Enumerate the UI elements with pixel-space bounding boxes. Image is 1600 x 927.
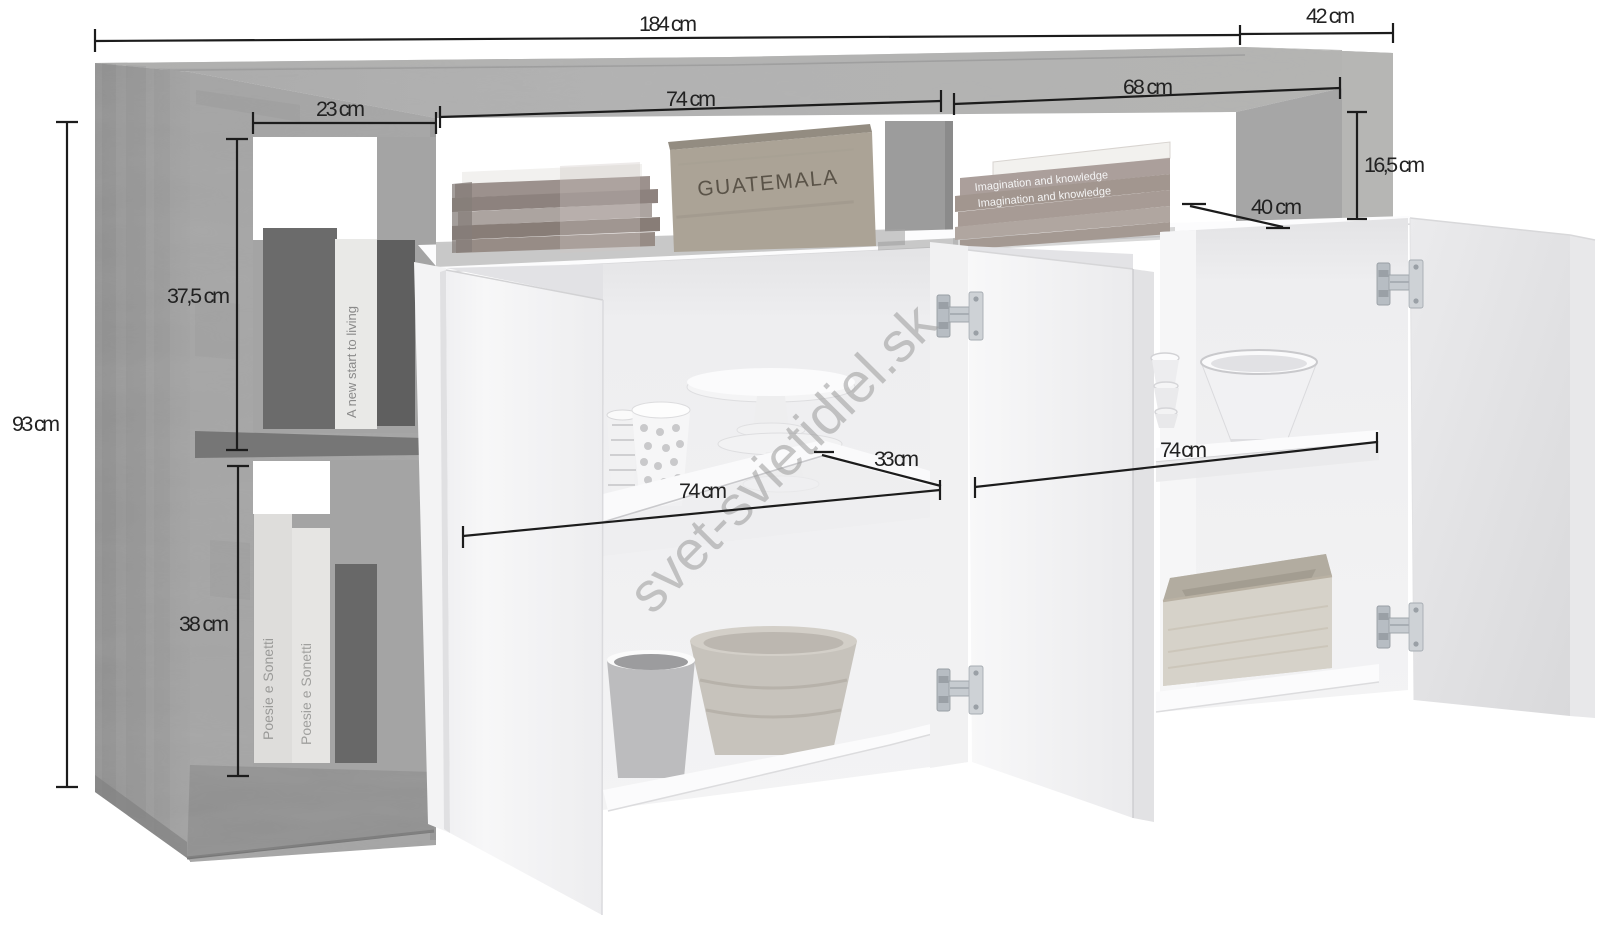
svg-text:38 cm: 38 cm	[179, 612, 229, 636]
svg-text:74 cm: 74 cm	[666, 87, 716, 111]
svg-text:40 cm: 40 cm	[1251, 195, 1302, 219]
svg-text:A new start to living: A new start to living	[344, 306, 359, 418]
svg-text:74 cm: 74 cm	[1160, 438, 1207, 462]
svg-text:16,5 cm: 16,5 cm	[1364, 153, 1425, 177]
svg-text:Poesie e Sonetti: Poesie e Sonetti	[260, 638, 276, 740]
svg-text:42 cm: 42 cm	[1306, 4, 1355, 28]
svg-text:23 cm: 23 cm	[316, 97, 365, 121]
svg-text:68 cm: 68 cm	[1123, 75, 1173, 99]
svg-text:Poesie e Sonetti: Poesie e Sonetti	[298, 643, 314, 745]
svg-text:37,5 cm: 37,5 cm	[167, 284, 230, 308]
svg-text:184 cm: 184 cm	[639, 12, 697, 36]
svg-text:93 cm: 93 cm	[12, 412, 60, 436]
svg-text:33 cm: 33 cm	[874, 447, 919, 471]
svg-text:74 cm: 74 cm	[679, 479, 727, 503]
